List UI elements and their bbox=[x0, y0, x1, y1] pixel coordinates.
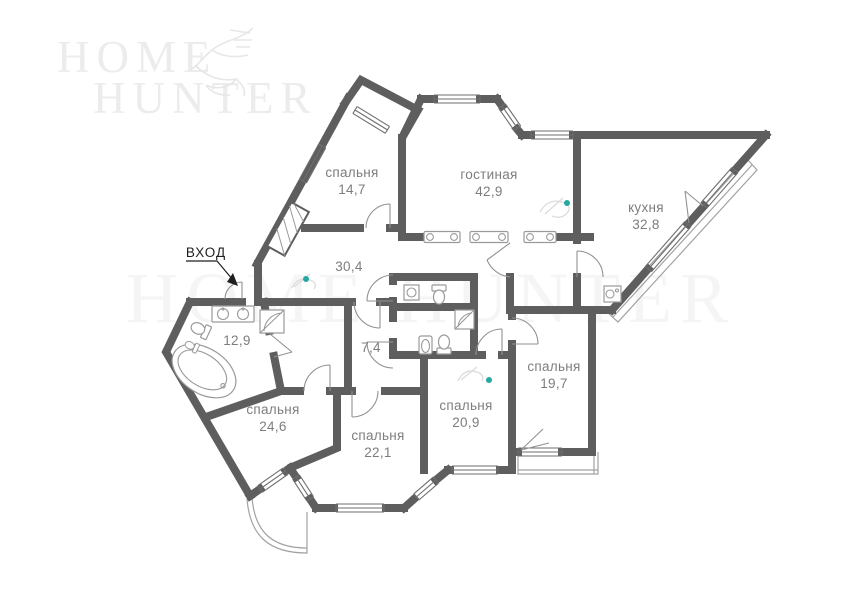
svg-text:14,7: 14,7 bbox=[338, 182, 365, 197]
svg-text:24,6: 24,6 bbox=[259, 419, 286, 434]
room-label-kitchen: кухня 32,8 bbox=[628, 200, 664, 232]
room-label-bedroom-left: спальня 24,6 bbox=[246, 402, 299, 434]
brand-logo: HOME HUNTER bbox=[57, 28, 317, 123]
svg-text:12,9: 12,9 bbox=[223, 333, 250, 348]
svg-text:7,4: 7,4 bbox=[361, 340, 381, 355]
window bbox=[414, 477, 439, 500]
room-label-hallway: 30,4 bbox=[335, 259, 363, 274]
toilet-icon bbox=[437, 335, 451, 354]
svg-text:19,7: 19,7 bbox=[540, 376, 567, 391]
radiator-icon bbox=[470, 232, 508, 243]
ceiling-light-dot bbox=[564, 200, 570, 206]
window bbox=[353, 107, 390, 134]
room-label-bedroom-center-right: спальня 20,9 bbox=[439, 398, 492, 430]
door-balcony-bedroom-right-leaf bbox=[521, 429, 549, 450]
svg-text:кухня: кухня bbox=[628, 200, 664, 215]
room-label-wc-central: 7,4 bbox=[361, 340, 381, 355]
window bbox=[452, 466, 498, 474]
room-label-bedroom-bottom-center: спальня 22,1 bbox=[351, 428, 404, 460]
window bbox=[701, 167, 738, 208]
svg-text:20,9: 20,9 bbox=[452, 415, 479, 430]
window bbox=[531, 131, 573, 139]
ceiling-light-dot bbox=[486, 377, 492, 383]
radiator-icon bbox=[424, 232, 460, 243]
svg-text:спальня: спальня bbox=[351, 428, 404, 443]
stove-icon bbox=[604, 286, 621, 302]
svg-text:32,8: 32,8 bbox=[632, 217, 659, 232]
logo-line2: HUNTER bbox=[93, 73, 317, 123]
shower-icon bbox=[455, 310, 474, 329]
room-label-bathroom-left: 12,9 bbox=[223, 333, 250, 348]
radiator-icon bbox=[524, 232, 556, 243]
double-sink-icon bbox=[212, 306, 254, 322]
floor-plan-canvas: HOME HUNTER HOME HUNTER bbox=[0, 0, 863, 610]
window bbox=[434, 95, 480, 103]
svg-text:гостиная: гостиная bbox=[460, 167, 517, 182]
svg-text:спальня: спальня bbox=[439, 398, 492, 413]
balcony-curved-left bbox=[247, 498, 307, 553]
svg-text:спальня: спальня bbox=[246, 402, 299, 417]
room-label-bedroom-top-left: спальня 14,7 bbox=[325, 165, 378, 197]
room-label-bedroom-right: спальня 19,7 bbox=[527, 359, 580, 391]
svg-text:спальня: спальня bbox=[325, 165, 378, 180]
room-label-living-room: гостиная 42,9 bbox=[460, 167, 517, 199]
shower-icon bbox=[260, 310, 284, 333]
svg-text:спальня: спальня bbox=[527, 359, 580, 374]
svg-text:42,9: 42,9 bbox=[475, 184, 502, 199]
svg-text:30,4: 30,4 bbox=[335, 259, 363, 274]
entrance-label: ВХОД bbox=[186, 245, 226, 260]
washer-icon bbox=[404, 285, 419, 300]
toilet-icon bbox=[432, 285, 446, 304]
svg-text:22,1: 22,1 bbox=[364, 445, 391, 460]
sink-icon bbox=[419, 336, 432, 354]
ceiling-light-dot bbox=[303, 276, 309, 282]
window bbox=[336, 504, 384, 512]
